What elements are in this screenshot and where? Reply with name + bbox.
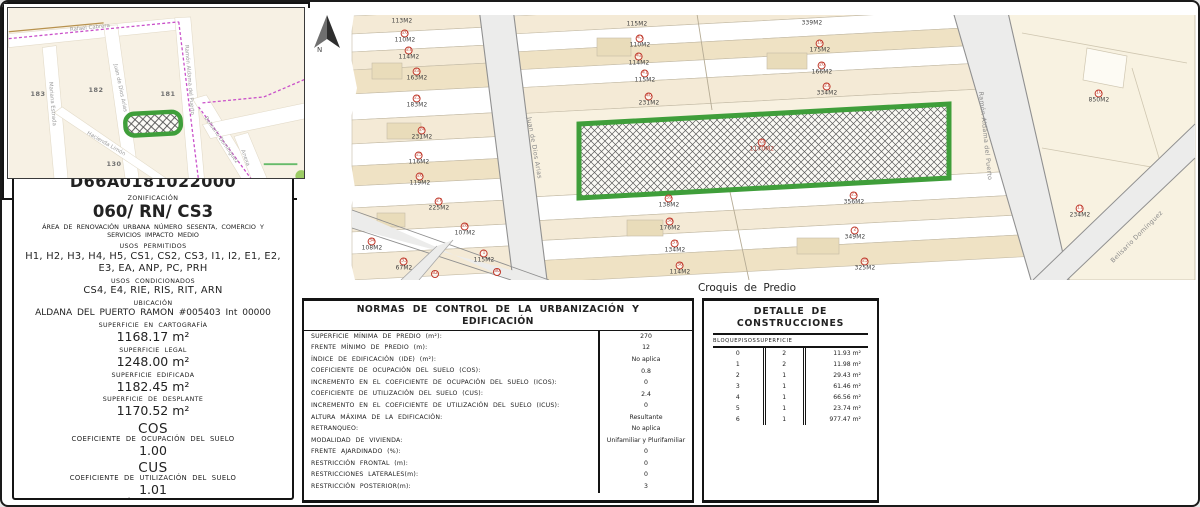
normas-row-label: ÍNDICE DE EDIFICACIÓN (IDE) (m²):: [304, 354, 598, 366]
surface-metric: SUPERFICIE DE DESPLANTE 1170.52 m²: [99, 397, 208, 418]
normas-row: INCREMENTO EN EL COEFICIENTE DE UTILIZAC…: [304, 400, 692, 412]
superficie-cell: 977.47 m²: [803, 414, 868, 425]
normas-row-value: 12: [598, 343, 692, 355]
detalle-row: 0 2 11.93 m²: [713, 348, 868, 359]
detalle-row: 6 1 977.47 m²: [713, 414, 868, 425]
detalle-construcciones-panel: DETALLE DE CONSTRUCCIONES BLOQUEPISOSSUP…: [702, 298, 879, 503]
normas-row-label: COEFICIENTE DE OCUPACIÓN DEL SUELO (COS)…: [304, 366, 598, 378]
block-number: 183: [30, 90, 45, 98]
bloque-cell: 1: [713, 359, 763, 370]
bloque-cell: 6: [713, 414, 763, 425]
normas-row-value: 0: [598, 400, 692, 412]
detalle-body: 0 2 11.93 m² 1 2 11.98 m² 2 1 29.43 m²: [713, 348, 868, 425]
usos-permitidos-label: USOS PERMITIDOS: [119, 244, 186, 251]
detalle-header-cell: PISOS: [738, 335, 756, 346]
normas-row-value: 3: [598, 481, 692, 493]
surface-metric: SUPERFICIE EN CARTOGRAFÍA 1168.17 m²: [99, 323, 208, 344]
croquis-manzana-map: 183182181130 Rafael CabreraMariana Estra…: [7, 7, 305, 179]
superficie-cell: 66.56 m²: [803, 392, 868, 403]
surface-metric: SUPERFICIE EDIFICADA 1182.45 m²: [99, 373, 208, 394]
predio-map-canvas: N: [297, 8, 1197, 280]
normas-row-value: No aplica: [598, 354, 692, 366]
normas-row-label: FRENTE AJARDINADO (%):: [304, 447, 598, 459]
normas-panel: NORMAS DE CONTROL DE LA URBANIZACIÓN Y E…: [302, 298, 694, 503]
detalle-row: 1 2 11.98 m²: [713, 359, 868, 370]
normas-row: RESTRICCIÓN FRONTAL (m): 0: [304, 458, 692, 470]
normas-row-label: RESTRICCIÓN FRONTAL (m):: [304, 458, 598, 470]
normas-row-label: INCREMENTO EN EL COEFICIENTE DE UTILIZAC…: [304, 400, 598, 412]
usos-condicionados-label: USOS CONDICIONADOS: [111, 279, 195, 286]
normas-row: ALTURA MÁXIMA DE LA EDIFICACIÓN: Resulta…: [304, 412, 692, 424]
normas-row-value: 2.4: [598, 389, 692, 401]
normas-row-value: Resultante: [598, 412, 692, 424]
detalle-row: 3 1 61.46 m²: [713, 381, 868, 392]
detalle-row: 4 1 66.56 m²: [713, 392, 868, 403]
block-number: 181: [160, 90, 175, 98]
pisos-cell: 1: [763, 392, 803, 403]
surface-metric-value: 1248.00 m²: [99, 355, 208, 369]
max-surface-metric: SUPERFICIE MÁXIMA PERMITIDA POR COS 998.…: [76, 499, 231, 500]
normas-row-label: MODALIDAD DE VIVIENDA:: [304, 435, 598, 447]
cos-value: 1.00: [139, 444, 167, 458]
normas-row: FRENTE MÍNIMO DE PREDIO (m): 12: [304, 343, 692, 355]
normas-row-label: COEFICIENTE DE UTILIZACIÓN DEL SUELO (CU…: [304, 389, 598, 401]
normas-row: MODALIDAD DE VIVIENDA: Unifamiliar y Plu…: [304, 435, 692, 447]
block-number: 182: [88, 86, 103, 94]
normas-row-value: 0: [598, 447, 692, 459]
pisos-cell: 1: [763, 370, 803, 381]
normas-row-label: RETRANQUEO:: [304, 424, 598, 436]
pisos-cell: 2: [763, 348, 803, 359]
detalle-header-cell: BLOQUE: [713, 335, 738, 346]
normas-row: COEFICIENTE DE UTILIZACIÓN DEL SUELO (CU…: [304, 389, 692, 401]
bloque-cell: 5: [713, 403, 763, 414]
normas-row: RESTRICCIÓN POSTERIOR(m): 3: [304, 481, 692, 493]
detalle-table: BLOQUEPISOSSUPERFICIE 0 2 11.93 m² 1 2 1…: [713, 333, 868, 425]
superficie-cell: 61.46 m²: [803, 381, 868, 392]
max-surface-metrics: SUPERFICIE MÁXIMA PERMITIDA POR COS 998.…: [76, 496, 231, 500]
normas-row: ÍNDICE DE EDIFICACIÓN (IDE) (m²): No apl…: [304, 354, 692, 366]
predio-caption: Croquis de Predio: [297, 282, 1197, 294]
bloque-cell: 0: [713, 348, 763, 359]
detalle-row: 5 1 23.74 m²: [713, 403, 868, 414]
normas-row-label: RESTRICCIÓN POSTERIOR(m):: [304, 481, 598, 493]
normas-row-label: RESTRICCIONES LATERALES(m):: [304, 470, 598, 482]
max-surface-label: SUPERFICIE MÁXIMA PERMITIDA POR COS: [76, 499, 231, 500]
normas-row-label: INCREMENTO EN EL COEFICIENTE DE OCUPACIÓ…: [304, 377, 598, 389]
bloque-cell: 2: [713, 370, 763, 381]
detalle-header: BLOQUEPISOSSUPERFICIE: [713, 335, 868, 348]
usos-permitidos-value: H1, H2, H3, H4, H5, CS1, CS2, CS3, I1, I…: [22, 251, 284, 275]
ubicacion-value: ALDANA DEL PUERTO RAMON #005403 Int 0000…: [27, 308, 279, 320]
surface-metric-value: 1182.45 m²: [99, 380, 208, 394]
surface-metric-value: 1168.17 m²: [99, 330, 208, 344]
svg-text:N: N: [317, 46, 322, 54]
normas-row-value: 0.8: [598, 366, 692, 378]
normas-row: INCREMENTO EN EL COEFICIENTE DE OCUPACIÓ…: [304, 377, 692, 389]
croquis-manzana-panel: 183182181130 Rafael CabreraMariana Estra…: [2, 2, 310, 200]
detalle-title: DETALLE DE CONSTRUCCIONES: [704, 306, 877, 330]
surface-metrics: SUPERFICIE EN CARTOGRAFÍA 1168.17 m² SUP…: [99, 319, 208, 418]
detalle-row: 2 1 29.43 m²: [713, 370, 868, 381]
detalle-header-cell: SUPERFICIE: [756, 335, 792, 346]
normas-row-value: 0: [598, 470, 692, 482]
normas-row-value: No aplica: [598, 424, 692, 436]
pisos-cell: 2: [763, 359, 803, 370]
surface-metric: SUPERFICIE LEGAL 1248.00 m²: [99, 348, 208, 369]
superficie-cell: 29.43 m²: [803, 370, 868, 381]
normas-row: FRENTE AJARDINADO (%): 0: [304, 447, 692, 459]
normas-row: COEFICIENTE DE OCUPACIÓN DEL SUELO (COS)…: [304, 366, 692, 378]
bloque-cell: 4: [713, 392, 763, 403]
superficie-cell: 23.74 m²: [803, 403, 868, 414]
croquis-predio-map: N 113M2 20 110M2 21 114M2: [297, 8, 1197, 280]
normas-row-value: 0: [598, 377, 692, 389]
block-number: 130: [106, 160, 121, 168]
normas-row: RETRANQUEO: No aplica: [304, 424, 692, 436]
bloque-cell: 3: [713, 381, 763, 392]
normas-row: RESTRICCIONES LATERALES(m): 0: [304, 470, 692, 482]
ubicacion-label: UBICACIÓN: [134, 301, 173, 308]
surface-metric-value: 1170.52 m²: [99, 404, 208, 418]
zoning-description: ÁREA DE RENOVACIÓN URBANA NÚMERO SESENTA…: [25, 223, 281, 240]
normas-row-value: 270: [598, 331, 692, 343]
normas-rows: SUPERFICIE MÍNIMA DE PREDIO (m²): 270 FR…: [304, 331, 692, 493]
normas-row-value: 0: [598, 458, 692, 470]
pisos-cell: 1: [763, 403, 803, 414]
cus-value: 1.01: [139, 483, 167, 497]
pisos-cell: 1: [763, 414, 803, 425]
normas-row-label: SUPERFICIE MÍNIMA DE PREDIO (m²):: [304, 331, 598, 343]
normas-row-label: FRENTE MÍNIMO DE PREDIO (m):: [304, 343, 598, 355]
visor-urbano-report: Gobierno de Guadalajara: [0, 0, 1200, 507]
zoning-code: 060/ RN/ CS3: [93, 203, 213, 221]
superficie-cell: 11.93 m²: [803, 348, 868, 359]
normas-row: SUPERFICIE MÍNIMA DE PREDIO (m²): 270: [304, 331, 692, 343]
normas-title: NORMAS DE CONTROL DE LA URBANIZACIÓN Y E…: [304, 301, 692, 331]
normas-row-value: Unifamiliar y Plurifamiliar: [598, 435, 692, 447]
superficie-cell: 11.98 m²: [803, 359, 868, 370]
pisos-cell: 1: [763, 381, 803, 392]
usos-condicionados-value: CS4, E4, RIE, RIS, RIT, ARN: [22, 285, 284, 297]
normas-row-label: ALTURA MÁXIMA DE LA EDIFICACIÓN:: [304, 412, 598, 424]
